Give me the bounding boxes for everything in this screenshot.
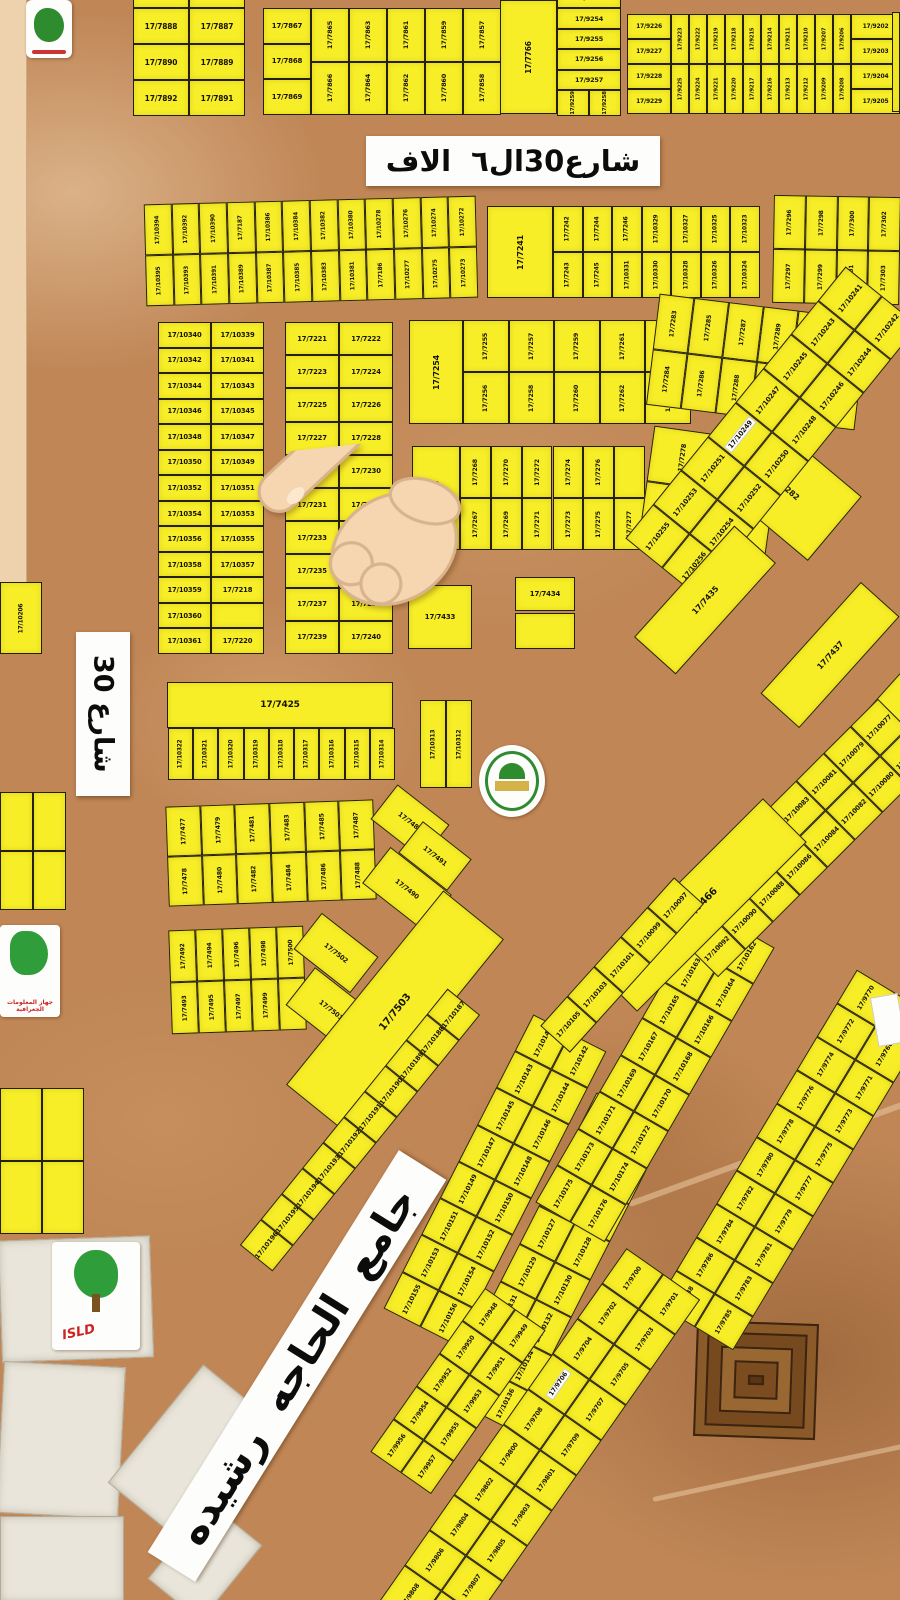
parcel[interactable]: 17/7298 [805,195,838,250]
parcel-label: 17/7491 [421,844,448,868]
parcel[interactable]: 17/7221 [285,322,339,355]
parcel-label: 17/9777 [794,1175,814,1202]
parcel-label: 17/10330 [653,261,659,290]
parcel[interactable]: 17/9206 [833,14,851,64]
parcel-label: 17/10351 [221,484,255,492]
parcel[interactable]: 17/7494 [195,929,224,982]
parcel[interactable]: 17/7484 [271,852,307,903]
parcel[interactable]: 17/9218 [725,14,743,64]
parcel[interactable]: 17/10394 [144,204,173,256]
parcel-label: 17/10243 [809,316,837,347]
parcel[interactable]: 17/9227 [627,39,671,64]
parcel[interactable]: 17/7868 [263,44,311,80]
parcel-label: 17/7861 [402,21,410,49]
parcel[interactable]: 17/7241 [487,206,553,298]
parcel-label: 17/9207 [821,28,827,51]
parcel[interactable]: 17/10356 [158,526,211,552]
parcel[interactable]: 17/10339 [211,322,264,348]
parcel-label: 17/9802 [474,1477,495,1503]
parcel[interactable]: 17/9216 [761,64,779,114]
parcel[interactable]: 17/7256 [463,372,509,424]
parcel[interactable]: 17/10380 [337,199,366,251]
parcel[interactable]: 17/7186 [366,249,395,301]
parcel-label: 17/7298 [817,210,824,236]
parcel-label: 17/7239 [297,633,326,641]
parcel-label: 17/10339 [221,331,255,339]
parcel-label: 17/9222 [695,28,701,51]
parcel[interactable]: 17/9219 [707,14,725,64]
parcel[interactable]: 17/10346 [158,399,211,425]
parcel[interactable]: 17/9258 [589,90,621,116]
parcel[interactable]: 17/10314 [370,728,395,780]
parcel[interactable]: 17/7478 [167,855,203,906]
parcel[interactable]: 17/9211 [779,14,797,64]
parcel-label: 17/7486 [320,863,328,890]
parcel-label: 17/10360 [168,612,202,620]
parcel-label: 17/9219 [713,28,719,51]
parcel-label: 17/7256 [482,384,489,411]
parcel-label: 17/10195 [274,1205,301,1235]
parcel[interactable]: 17/10348 [158,424,211,450]
parcel-label: 17/7187 [238,215,245,240]
parcel-label: 17/10255 [644,520,672,551]
parcel-label: 17/7241 [515,235,524,270]
parcel-label: 17/7244 [594,217,600,242]
parcel[interactable]: 17/10345 [211,399,264,425]
parcel[interactable]: 17/10352 [158,475,211,501]
parcel[interactable]: 17/7270 [491,446,522,498]
parcel[interactable]: 17/7486 [306,851,342,902]
parcel[interactable] [0,1161,42,1234]
parcel[interactable]: 17/7766 [500,0,557,114]
parcel-label: 17/10249 [725,417,755,452]
parcel-label: 17/10147 [475,1136,497,1169]
parcel-label: 17/9772 [836,1018,856,1045]
parcel[interactable]: 17/7245 [583,252,613,298]
parcel[interactable]: 17/10387 [256,252,285,304]
parcel-label: 17/9703 [634,1326,655,1352]
parcel-label: 17/7300 [849,210,856,236]
parcel[interactable]: 17/10206 [0,582,42,654]
parcel[interactable]: 17/10386 [254,201,283,253]
parcel[interactable]: 17/10389 [228,252,257,304]
parcel[interactable]: 17/9225 [671,64,689,114]
parcel[interactable]: 17/9207 [815,14,833,64]
parcel-label: 17/9803 [511,1503,532,1529]
parcel-label: 17/9217 [749,78,755,101]
block-9258: 17/925917/9258 [557,90,621,116]
band2-cols: 17/724217/724417/724617/1032917/1032717/… [553,206,760,298]
parcel[interactable]: 17/7487 [339,799,375,850]
parcel[interactable]: 17/10343 [211,373,264,399]
parcel[interactable]: 17/7218 [211,577,264,603]
parcel[interactable]: 17/9217 [743,64,761,114]
parcel[interactable]: 17/10328 [671,252,701,298]
parcel[interactable]: 17/7858 [463,62,501,116]
parcel[interactable]: 17/10327 [671,206,701,252]
parcel-label: 17/10175 [552,1178,575,1210]
parcel[interactable]: 17/10313 [420,700,446,788]
parcel[interactable]: 17/7867 [263,8,311,44]
parcel[interactable]: 17/10331 [612,252,642,298]
parcel[interactable]: 17/7255 [463,320,509,372]
parcel[interactable]: 17/7485 [304,801,340,852]
block-10312: 17/1031317/10312 [420,700,472,788]
parcel-label: 17/10248 [790,414,818,445]
parcel-label: 17/7261 [619,332,626,359]
parcel-label: 17/9708 [523,1406,544,1432]
parcel[interactable]: 17/7492 [168,929,197,982]
parcel-label: 17/7493 [180,995,188,1021]
parcel[interactable]: 17/7254 [409,320,463,424]
parcel[interactable]: 17/10316 [319,728,344,780]
parcel[interactable]: 17/7495 [197,980,226,1033]
parcel[interactable]: 17/7864 [349,62,387,116]
parcel[interactable]: 17/10361 [158,628,211,654]
parcel[interactable]: 17/7499 [251,979,280,1032]
parcel[interactable]: 17/7244 [583,206,613,252]
parcel[interactable]: 17/7862 [387,62,425,116]
parcel[interactable]: 17/7479 [200,804,236,855]
parcel-label: 17/7499 [261,992,269,1018]
parcel-label: 17/10167 [637,1031,660,1063]
parcel-label: 17/7892 [145,94,178,103]
parcel[interactable]: 17/7268 [460,446,491,498]
parcel[interactable]: 17/7892 [133,80,189,116]
parcel-label: 17/9206 [839,28,845,51]
parcel[interactable]: 17/7863 [349,8,387,62]
parcel[interactable]: 17/10323 [730,206,760,252]
parcel[interactable]: 17/10278 [365,198,394,250]
parcel-label: 17/10097 [662,891,690,920]
parcel-label: 17/9771 [854,1075,874,1102]
parcel-label: 17/10247 [754,384,782,415]
parcel[interactable]: 17/7260 [554,372,600,424]
parcel-label: 17/7480 [216,866,224,893]
parcel[interactable]: 17/10385 [283,251,312,303]
parcel[interactable]: 17/7297 [772,249,805,304]
parcel[interactable]: 17/7222 [339,322,393,355]
parcel-label: 17/9955 [440,1421,461,1447]
parcel[interactable]: 17/7493 [170,981,199,1034]
parcel-label: 17/10277 [405,259,412,288]
parcel[interactable]: 17/7869 [263,79,311,115]
parcel[interactable]: 17/10342 [158,348,211,374]
parcel[interactable]: 17/7276 [583,446,614,498]
parcel[interactable]: 17/10357 [211,552,264,578]
parcel[interactable]: 17/10358 [158,552,211,578]
parcel-label: 17/10323 [742,215,748,244]
parcel-label: 17/7487 [353,812,361,839]
parcel[interactable]: 17/7888 [133,8,189,44]
parcel[interactable]: 17/10359 [158,577,211,603]
parcel[interactable]: 17/9212 [797,64,815,114]
parcel[interactable]: 17/7273 [553,498,584,550]
parcel-label: 17/7865 [326,21,334,49]
parcel[interactable]: 17/9208 [833,64,851,114]
cadastral-map: شارع30ال٦ الاف شارع 30 جامع الحاجه رشيده… [0,0,900,1600]
block-7268: 17/726817/727017/727217/727417/727617/72… [460,446,645,550]
parcel[interactable]: 17/7224 [339,355,393,388]
parcel[interactable]: 17/7857 [463,8,501,62]
mosque-base-icon [495,781,529,791]
parcel[interactable]: 17/10320 [218,728,243,780]
parcel-label: 17/10245 [781,350,809,381]
parcel[interactable]: 17/7262 [600,372,646,424]
parcel[interactable]: 17/7220 [211,628,264,654]
parcel[interactable] [0,792,33,851]
parcel[interactable]: 17/10350 [158,450,211,476]
parcel[interactable]: 17/7261 [600,320,646,372]
parcel[interactable]: 17/7259 [554,320,600,372]
parcel-label: 17/9952 [432,1367,453,1393]
parcel-label: 17/10189 [399,1051,426,1081]
parcel[interactable]: 17/7860 [425,62,463,116]
parcel[interactable]: 17/7274 [553,446,584,498]
parcel[interactable]: 17/10390 [199,202,228,254]
parcel[interactable]: 17/9224 [689,64,707,114]
parcel[interactable]: 17/9220 [725,64,743,114]
parcel[interactable]: 17/10384 [282,200,311,252]
parcel[interactable]: 17/10330 [642,252,672,298]
parcel[interactable]: 17/9253 [557,0,621,8]
parcel-label: 17/7287 [738,318,748,345]
parcel[interactable]: 17/10329 [642,206,672,252]
parcel-label: 17/10359 [168,586,202,594]
parcel[interactable]: 17/7243 [553,252,583,298]
parcel[interactable]: 17/7275 [583,498,614,550]
parcel-label: 17/10172 [629,1124,652,1156]
street-label-top-text: شارع30ال٦ الاف [386,144,640,178]
parcel[interactable]: 17/7890 [133,44,189,80]
parcel[interactable]: 17/10317 [294,728,319,780]
parcel-label: 17/7867 [272,22,302,30]
parcel[interactable]: 17/7242 [553,206,583,252]
tree-icon [74,1250,118,1298]
parcel-label: 17/10315 [354,740,360,769]
parcel[interactable]: 17/10381 [339,250,368,302]
parcel[interactable] [42,1088,84,1161]
parcel[interactable] [33,851,66,910]
parcel[interactable]: 17/10277 [394,248,423,300]
block-10340: 17/1034017/1033917/1034217/1034117/10344… [158,322,264,654]
parcel[interactable]: 17/7887 [189,8,245,44]
parcel[interactable]: 17/7483 [269,802,305,853]
parcel[interactable]: 17/9226 [627,14,671,39]
parcel[interactable]: 17/7866 [311,62,349,116]
parcel[interactable]: 17/9213 [779,64,797,114]
parcel-label: 17/9957 [417,1454,438,1480]
parcel[interactable]: 17/10319 [244,728,269,780]
parcel[interactable]: 17/7223 [285,355,339,388]
parcel-label: 17/7495 [207,994,215,1020]
parcel-label: 17/9218 [731,28,737,51]
parcel-label: 17/10170 [650,1087,673,1119]
parcel[interactable]: 17/7225 [285,388,339,421]
parcel-label: 17/10105 [555,1010,583,1039]
parcel-label: 17/9202 [863,23,889,30]
parcel[interactable]: 17/9210 [797,14,815,64]
parcel-label: 17/7186 [377,262,384,287]
parcel[interactable] [189,0,245,8]
parcel[interactable]: 17/7258 [509,372,555,424]
parcel[interactable]: 17/7257 [509,320,555,372]
parcel[interactable]: 17/10274 [420,196,449,248]
parcel[interactable]: 17/10360 [158,603,211,629]
parcel[interactable]: 17/10383 [311,250,340,302]
parcel[interactable]: 17/10325 [701,206,731,252]
block-9253: 17/925317/925417/925517/925617/9257 [557,0,621,90]
parcel-label: 17/7858 [478,74,486,102]
parcel-label: 17/9702 [597,1301,618,1327]
parcel-label: 17/7425 [260,700,299,710]
parcel[interactable]: 17/7296 [773,195,806,250]
parcel-label: 17/10206 [17,603,24,633]
parcel[interactable]: 17/10275 [422,247,451,299]
parcel[interactable]: 17/10273 [449,247,478,299]
band2-strip: 17/1039417/1039217/1039017/718717/103861… [144,196,479,307]
parcel[interactable]: 17/7246 [612,206,642,252]
parcel[interactable]: 17/7302 [868,197,900,252]
parcel[interactable]: 17/7272 [522,446,553,498]
parcel[interactable]: 17/9223 [671,14,689,64]
parcel[interactable]: 17/7859 [425,8,463,62]
parcel-label: 17/9203 [863,48,889,55]
parcel[interactable]: 17/7269 [491,498,522,550]
parcel-label: 17/7864 [364,74,372,102]
map-shape-icon [34,8,64,42]
parcel-label: 17/10393 [184,265,191,294]
parcel[interactable] [0,1088,42,1161]
parcel[interactable]: 17/10393 [173,254,202,306]
parcel[interactable]: 17/9257 [557,70,621,90]
parcel[interactable]: 17/9209 [815,64,833,114]
parcel[interactable]: 17/10341 [211,348,264,374]
parcel[interactable] [0,851,33,910]
parcel[interactable]: 17/10312 [446,700,472,788]
parcel-sliver [892,12,900,112]
parcel-label: 17/7245 [594,263,600,288]
parcel-label: 17/10130 [552,1274,574,1307]
parcel[interactable]: 17/7889 [189,44,245,80]
parcel[interactable]: 17/10382 [310,199,339,251]
parcel[interactable]: 17/7434 [515,577,575,611]
parcel[interactable]: 17/7497 [224,980,253,1033]
parcel[interactable]: 17/9222 [689,14,707,64]
parcel[interactable]: 17/7891 [189,80,245,116]
parcel-label: 17/7857 [478,21,486,49]
parcel[interactable]: 17/10276 [393,197,422,249]
parcel[interactable]: 17/9214 [761,14,779,64]
parcel-label: 17/10154 [456,1265,478,1298]
parcel-7425: 17/7425 [167,682,393,728]
parcel-7254: 17/7254 [409,320,463,424]
parcel[interactable]: 17/9259 [557,90,589,116]
parcel[interactable]: 17/10340 [158,322,211,348]
parcel[interactable]: 17/7187 [227,201,256,253]
parcel-label: 17/7888 [145,22,178,31]
parcel[interactable] [133,0,189,8]
parcel-label: 17/10127 [536,1218,558,1251]
parcel-label: 17/9785 [714,1309,734,1336]
parcel[interactable]: 17/9255 [557,29,621,49]
parcel[interactable]: 17/7477 [165,805,201,856]
parcel[interactable]: 17/9215 [743,14,761,64]
parcel-label: 17/9808 [400,1582,421,1600]
parcel[interactable] [42,1161,84,1234]
parcel-label: 17/7296 [786,209,793,235]
parcel[interactable]: 17/7482 [236,853,272,904]
parcel[interactable]: 17/7865 [311,8,349,62]
parcel[interactable]: 17/7496 [222,928,251,981]
parcel-label: 17/7498 [260,940,268,966]
parcel[interactable]: 17/7300 [837,196,870,251]
parcel[interactable]: 17/10324 [730,252,760,298]
parcel-label: 17/10394 [155,215,162,244]
parcel[interactable]: 17/9221 [707,64,725,114]
parcel[interactable] [33,792,66,851]
parcel[interactable]: 17/10344 [158,373,211,399]
pointing-hand-icon [249,434,477,635]
left-block-a [0,792,66,910]
parcel[interactable]: 17/10392 [171,203,200,255]
parcel-label: 17/9780 [756,1152,776,1179]
parcel[interactable]: 17/7271 [522,498,553,550]
parcel[interactable]: 17/9228 [627,64,671,89]
parcel-label: 17/7868 [272,57,302,65]
parcel[interactable]: 17/7481 [235,803,271,854]
parcel-label: 17/10081 [810,768,839,797]
parcel[interactable]: 17/10391 [200,253,229,305]
parcel-label: 17/10328 [683,261,689,290]
parcel[interactable] [211,603,264,629]
parcel[interactable]: 17/10326 [701,252,731,298]
parcel[interactable]: 17/7226 [339,388,393,421]
parcel[interactable] [892,12,900,112]
parcel[interactable]: 17/10347 [211,424,264,450]
parcel[interactable]: 17/10322 [168,728,193,780]
parcel-label: 17/7220 [223,637,252,645]
parcel-label: 17/7497 [234,993,242,1019]
parcel[interactable]: 17/10315 [345,728,370,780]
parcel-label: 17/10079 [837,740,866,769]
parcel[interactable]: 17/10395 [145,255,174,307]
parcel[interactable]: 17/7861 [387,8,425,62]
pale-strip [0,0,27,620]
parcel[interactable]: 17/9256 [557,49,621,69]
parcel[interactable]: 17/7480 [202,854,238,905]
parcel[interactable] [614,446,645,498]
parcel[interactable]: 17/9254 [557,8,621,28]
parcel[interactable]: 17/7498 [249,927,278,980]
parcel-label: 17/10187 [440,999,467,1029]
parcel-label: 17/9259 [570,91,576,115]
parcel[interactable]: 17/10272 [448,196,477,248]
parcel-label: 17/7866 [326,74,334,102]
parcel-label: 17/9257 [575,76,603,84]
parcel[interactable]: 17/10318 [269,728,294,780]
parcel-label: 17/7257 [528,332,535,359]
parcel[interactable]: 17/10354 [158,501,211,527]
parcel[interactable]: 17/7425 [167,682,393,728]
parcel-label: 17/9221 [713,78,719,101]
parcel[interactable]: 17/10321 [193,728,218,780]
parcel[interactable] [515,613,575,649]
parcel[interactable]: 17/9229 [627,89,671,114]
parcel-label: 17/10241 [836,282,864,313]
parcel-label: 17/7254 [431,355,440,390]
parcel-label: 17/7302 [881,211,888,237]
